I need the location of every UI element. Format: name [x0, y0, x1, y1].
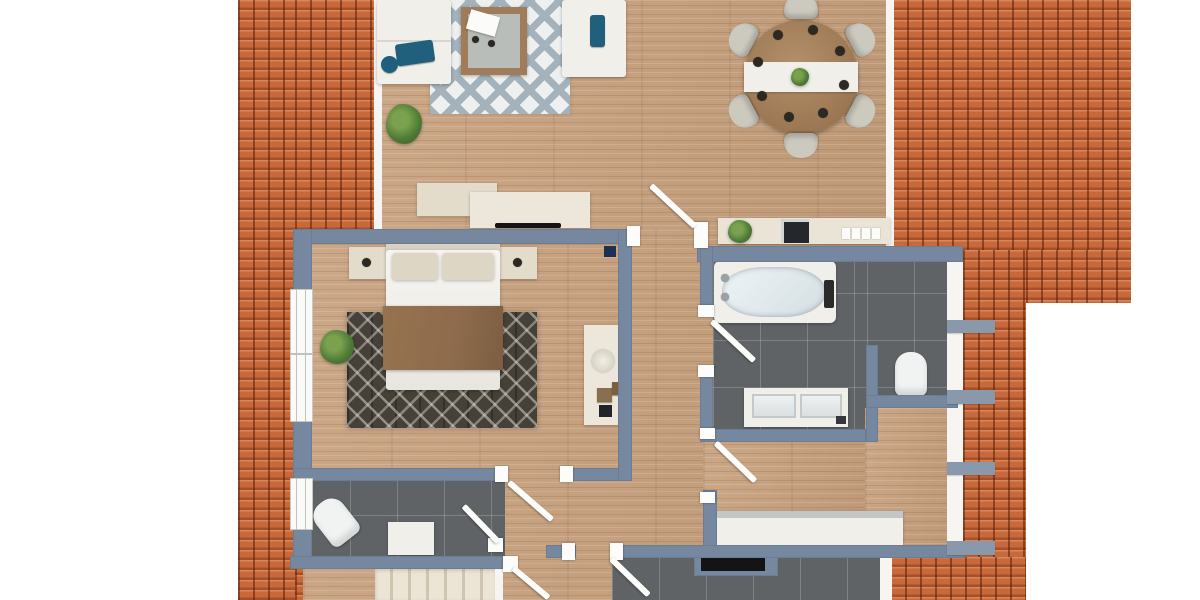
nightstand-lamp	[362, 258, 371, 267]
bathtub	[722, 267, 826, 317]
dining-chair-1	[784, 0, 818, 19]
bed-pillow-right	[442, 253, 494, 280]
wall-left-a	[293, 229, 312, 291]
bedroom-window	[290, 289, 313, 422]
place-setting	[773, 30, 783, 40]
table-decor-dot	[488, 40, 495, 47]
bed-blanket	[383, 306, 503, 370]
console-dish	[872, 228, 880, 239]
wall-bottom-long	[612, 545, 965, 558]
vanity-item	[836, 416, 846, 424]
stair-edge	[495, 568, 503, 600]
tv-flat	[495, 223, 561, 228]
wall-switch	[604, 246, 616, 257]
wc-window	[290, 478, 313, 530]
bath-tap	[721, 293, 729, 301]
roof-right-upper	[1026, 250, 1131, 303]
wall-bedroom-top	[295, 229, 640, 244]
exterior-wall-right-top	[886, 0, 894, 250]
console-art	[781, 219, 809, 243]
desk-flower	[592, 350, 614, 372]
door-jamb	[698, 305, 714, 317]
wall-wc-bottom	[290, 556, 512, 569]
vanity-sink-left	[752, 394, 796, 418]
table-decor-dot	[472, 36, 479, 43]
toilet	[895, 352, 927, 396]
door-jamb	[700, 428, 715, 439]
door-jamb	[627, 226, 640, 246]
wall-bedroom-bottom-a	[293, 468, 508, 481]
wall-left-b	[293, 420, 312, 470]
wall-bath-partition	[866, 345, 878, 442]
wall-toilet-nook	[866, 395, 958, 408]
bed-pillow-left	[392, 253, 438, 280]
roof-left-strip	[238, 0, 295, 600]
wall-bath-left-b	[700, 368, 713, 430]
door-jamb	[700, 492, 715, 503]
vanity-sink-right	[800, 394, 842, 418]
wardrobe-top-edge	[717, 511, 903, 518]
floor-plan	[0, 0, 1200, 600]
wall-bedroom-right	[618, 229, 632, 481]
wall-top-right	[697, 246, 963, 262]
console-dish	[842, 228, 850, 239]
roof-left-top	[295, 0, 377, 230]
door-jamb	[562, 543, 575, 560]
place-setting	[835, 46, 845, 56]
bath-tap	[721, 274, 729, 282]
desk-box	[597, 388, 612, 402]
place-setting	[753, 57, 763, 67]
window-post-4	[947, 541, 995, 555]
desk-box-dark	[599, 405, 612, 417]
window-post-1	[947, 320, 995, 333]
door-jamb	[694, 222, 708, 248]
place-setting	[808, 25, 818, 35]
window-post-2	[947, 390, 995, 404]
console-dish	[862, 228, 870, 239]
sofa-right-cushion	[590, 15, 605, 47]
roof-right-bottom	[890, 557, 1026, 600]
place-setting	[839, 80, 849, 90]
roof-right-top	[892, 0, 1131, 250]
exterior-gap-bottom	[880, 557, 892, 600]
door-jamb	[560, 466, 573, 482]
bath-towel	[824, 280, 834, 308]
place-setting	[757, 91, 767, 101]
place-setting	[784, 112, 794, 122]
nightstand-lamp	[513, 258, 522, 267]
place-setting	[818, 108, 828, 118]
window-post-3	[947, 462, 995, 475]
wc-cabinet	[388, 522, 434, 555]
door-jamb	[495, 466, 508, 482]
sofa-pillow-round	[381, 56, 398, 73]
wall-bath-bottom	[700, 429, 866, 442]
staircase	[375, 568, 497, 600]
wall-left-c	[293, 528, 312, 558]
console-dish	[852, 228, 860, 239]
door-jamb	[698, 365, 714, 377]
